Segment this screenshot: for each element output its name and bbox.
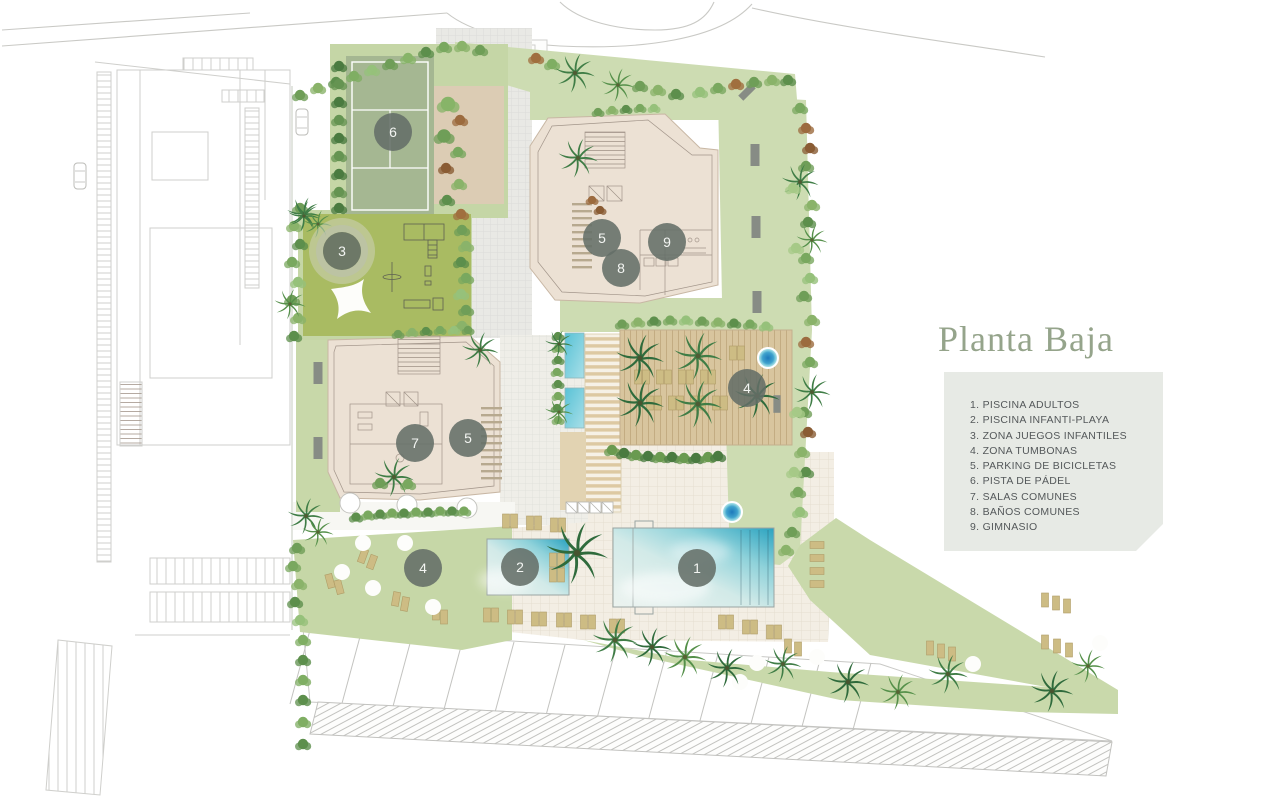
marker-piscina-adultos: 1 <box>678 549 716 587</box>
marker-pista-de-padel: 6 <box>374 113 412 151</box>
marker-gimnasio: 9 <box>648 223 686 261</box>
spa-pool <box>722 502 742 522</box>
building-salas-comunes <box>328 336 502 500</box>
spa-pool <box>758 348 778 368</box>
legend-item: 3. ZONA JUEGOS INFANTILES <box>970 429 1163 444</box>
car-icon <box>74 163 86 189</box>
site-plan-page: 1 2 3 4 4 5 5 6 7 8 9 Planta Baja 1. PIS… <box>0 0 1280 800</box>
legend-item: 6. PISTA DE PÁDEL <box>970 474 1163 489</box>
marker-salas-comunes: 7 <box>396 424 434 462</box>
marker-zona-juegos-infantiles: 3 <box>323 232 361 270</box>
page-title: Planta Baja <box>938 318 1198 360</box>
legend-list: 1. PISCINA ADULTOS 2. PISCINA INFANTI-PL… <box>970 398 1163 536</box>
legend-item: 8. BAÑOS COMUNES <box>970 505 1163 520</box>
legend-item: 5. PARKING DE BICICLETAS <box>970 459 1163 474</box>
legend-item: 2. PISCINA INFANTI-PLAYA <box>970 413 1163 428</box>
central-steps <box>560 333 621 513</box>
legend-item: 7. SALAS COMUNES <box>970 490 1163 505</box>
legend-panel: 1. PISCINA ADULTOS 2. PISCINA INFANTI-PL… <box>944 372 1163 551</box>
marker-zona-tumbonas-lawn: 4 <box>404 549 442 587</box>
marker-zona-tumbonas-deck: 4 <box>728 369 766 407</box>
legend-item: 4. ZONA TUMBONAS <box>970 444 1163 459</box>
playground <box>303 214 471 336</box>
marker-parking-bicicletas-oeste: 5 <box>449 419 487 457</box>
lap-pool <box>565 388 584 428</box>
legend-item: 1. PISCINA ADULTOS <box>970 398 1163 413</box>
marker-piscina-infanti-playa: 2 <box>501 548 539 586</box>
marker-banos-comunes: 8 <box>602 249 640 287</box>
car-icon <box>296 109 308 135</box>
lap-pool <box>565 333 584 378</box>
legend-item: 9. GIMNASIO <box>970 520 1163 535</box>
